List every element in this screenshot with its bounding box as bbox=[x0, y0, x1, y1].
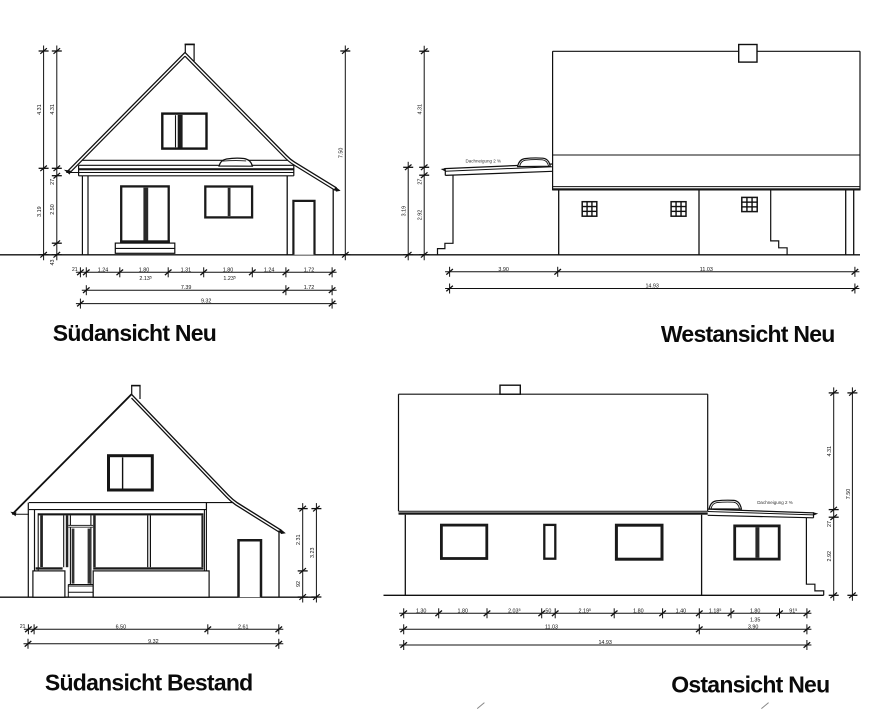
svg-text:27: 27 bbox=[50, 179, 56, 185]
svg-text:27: 27 bbox=[418, 179, 424, 185]
svg-text:1.31: 1.31 bbox=[181, 267, 192, 273]
svg-text:Südansicht Neu: Südansicht Neu bbox=[53, 320, 216, 346]
svg-text:9.32: 9.32 bbox=[201, 299, 212, 305]
svg-text:Ostansicht Neu: Ostansicht Neu bbox=[671, 671, 829, 697]
svg-text:1.35: 1.35 bbox=[750, 618, 761, 624]
svg-text:14.93: 14.93 bbox=[645, 284, 659, 290]
svg-text:43: 43 bbox=[50, 260, 56, 266]
svg-text:1.24: 1.24 bbox=[98, 267, 109, 273]
svg-text:2.50: 2.50 bbox=[50, 204, 56, 215]
svg-text:50: 50 bbox=[545, 608, 551, 614]
svg-text:1.80: 1.80 bbox=[458, 608, 469, 614]
svg-text:1.30: 1.30 bbox=[416, 608, 427, 614]
svg-text:6.50: 6.50 bbox=[116, 624, 127, 630]
svg-text:7.39: 7.39 bbox=[181, 285, 192, 291]
svg-text:11.03: 11.03 bbox=[545, 624, 558, 630]
svg-text:3.90: 3.90 bbox=[498, 267, 509, 273]
svg-text:7.50: 7.50 bbox=[846, 489, 852, 500]
svg-text:2.92: 2.92 bbox=[418, 210, 424, 221]
svg-text:1.80: 1.80 bbox=[750, 608, 761, 614]
svg-text:1.72: 1.72 bbox=[304, 285, 315, 291]
svg-text:4.31: 4.31 bbox=[418, 104, 424, 115]
svg-text:Dachneigung 2 %: Dachneigung 2 % bbox=[757, 500, 793, 505]
svg-text:1.80: 1.80 bbox=[633, 608, 644, 614]
svg-text:27: 27 bbox=[827, 521, 833, 527]
svg-text:2.31: 2.31 bbox=[296, 534, 302, 545]
svg-text:3.19: 3.19 bbox=[402, 206, 408, 217]
svg-text:3.19: 3.19 bbox=[37, 206, 43, 217]
svg-text:2.92: 2.92 bbox=[827, 551, 833, 562]
svg-text:3.90: 3.90 bbox=[748, 624, 759, 630]
svg-text:4.31: 4.31 bbox=[50, 104, 56, 115]
svg-text:1.24: 1.24 bbox=[264, 267, 275, 273]
svg-text:1.80: 1.80 bbox=[223, 267, 234, 273]
svg-text:14.93: 14.93 bbox=[598, 640, 612, 646]
svg-text:Westansicht Neu: Westansicht Neu bbox=[661, 321, 835, 347]
svg-text:7.50: 7.50 bbox=[339, 148, 345, 159]
svg-text:4.31: 4.31 bbox=[37, 104, 43, 115]
svg-text:21: 21 bbox=[72, 267, 78, 273]
svg-text:Dachneigung 2 %: Dachneigung 2 % bbox=[466, 159, 502, 164]
svg-text:3.23: 3.23 bbox=[310, 548, 316, 559]
svg-text:4.31: 4.31 bbox=[827, 446, 833, 457]
svg-text:Südansicht Bestand: Südansicht Bestand bbox=[45, 669, 253, 695]
svg-text:1.72: 1.72 bbox=[304, 267, 315, 273]
svg-text:21: 21 bbox=[20, 624, 26, 630]
svg-text:2.61: 2.61 bbox=[238, 624, 249, 630]
svg-text:1.80: 1.80 bbox=[139, 267, 150, 273]
svg-text:1.40: 1.40 bbox=[676, 608, 687, 614]
svg-text:9.32: 9.32 bbox=[148, 639, 159, 645]
svg-text:92: 92 bbox=[296, 581, 302, 587]
svg-text:11.03: 11.03 bbox=[700, 267, 713, 273]
